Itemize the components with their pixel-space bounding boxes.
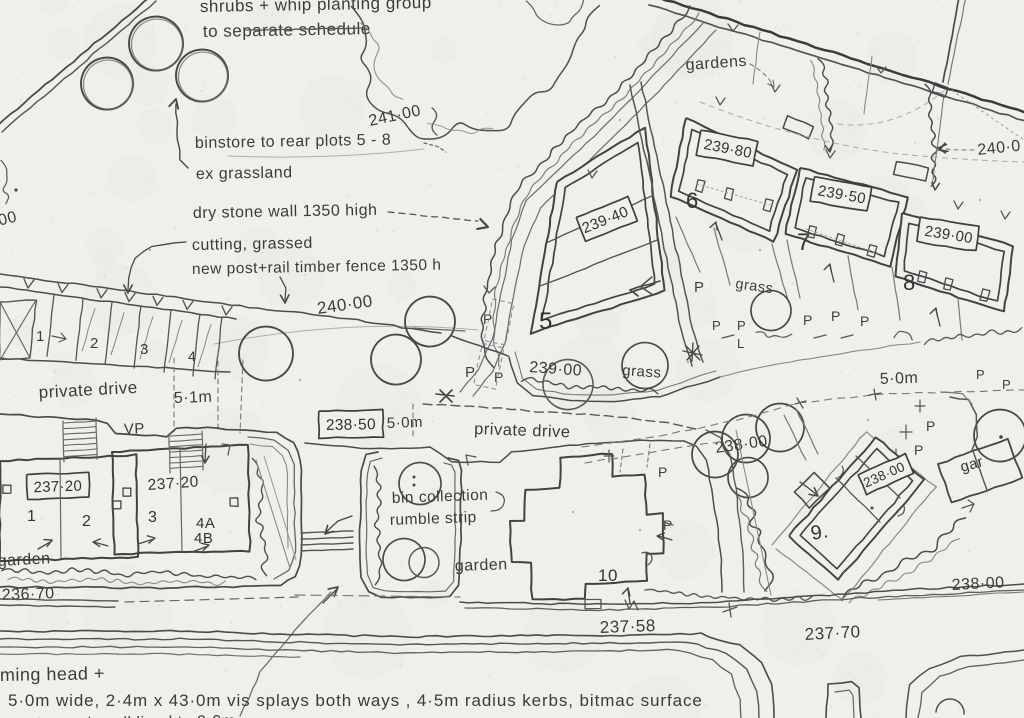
svg-text:5·0m wide, 2·4m x 43·0m vis: 5·0m wide, 2·4m x 43·0m vis splays both … <box>8 691 702 710</box>
svg-text:private drive: private drive <box>474 420 571 441</box>
svg-text:8: 8 <box>903 270 916 295</box>
svg-text:P: P <box>831 308 841 324</box>
svg-text:237·70: 237·70 <box>804 622 861 644</box>
svg-text:garden: garden <box>0 550 51 570</box>
svg-text:2: 2 <box>90 335 99 352</box>
svg-text:4: 4 <box>188 348 196 364</box>
svg-text:3: 3 <box>148 509 157 526</box>
svg-text:binstore to rear plots 5 - 8: binstore to rear plots 5 - 8 <box>195 132 392 152</box>
svg-text:P: P <box>926 418 936 434</box>
svg-text:P: P <box>737 318 746 333</box>
svg-text:5·1m: 5·1m <box>174 389 213 407</box>
svg-text:P: P <box>694 279 705 296</box>
svg-text:P: P <box>658 464 668 480</box>
svg-text:bin collection: bin collection <box>392 487 489 507</box>
svg-text:P: P <box>976 367 985 382</box>
svg-text:5: 5 <box>539 308 553 335</box>
svg-text:6: 6 <box>686 188 699 213</box>
svg-text:10: 10 <box>598 566 618 585</box>
svg-text:P: P <box>712 318 721 333</box>
svg-text:P: P <box>483 311 493 327</box>
svg-text:1: 1 <box>27 508 36 525</box>
svg-text:238·50: 238·50 <box>326 416 376 434</box>
svg-text:237·58: 237·58 <box>599 616 656 637</box>
svg-text:2: 2 <box>82 513 91 530</box>
svg-text:P: P <box>494 369 504 385</box>
svg-text:P: P <box>465 364 476 381</box>
svg-text:3: 3 <box>140 341 149 358</box>
svg-text:5·0m: 5·0m <box>880 370 919 388</box>
svg-text:237·20: 237·20 <box>33 478 82 497</box>
svg-text:ming head +: ming head + <box>0 663 105 685</box>
svg-text:P: P <box>914 442 924 458</box>
svg-text:7: 7 <box>797 229 811 256</box>
svg-text:to separate schedule: to separate schedule <box>203 19 371 41</box>
svg-text:238·00: 238·00 <box>951 574 1005 594</box>
svg-text:garden: garden <box>455 556 508 575</box>
svg-text:ex grassland: ex grassland <box>196 164 293 183</box>
svg-text:237·20: 237·20 <box>147 473 199 494</box>
svg-text:grass: grass <box>622 362 662 382</box>
svg-text:L: L <box>737 336 745 351</box>
svg-text:cutting, grassed: cutting, grassed <box>192 235 313 254</box>
svg-text:rumble strip: rumble strip <box>390 509 478 529</box>
svg-text:P: P <box>860 313 870 329</box>
svg-text:236·70: 236·70 <box>2 585 55 604</box>
svg-text:P: P <box>803 312 813 328</box>
svg-text:5·0m: 5·0m <box>387 414 424 432</box>
svg-text:dry stone wall 1350 high: dry stone wall 1350 high <box>193 202 378 222</box>
svg-text:9.: 9. <box>809 520 830 545</box>
svg-text:1: 1 <box>36 328 45 345</box>
